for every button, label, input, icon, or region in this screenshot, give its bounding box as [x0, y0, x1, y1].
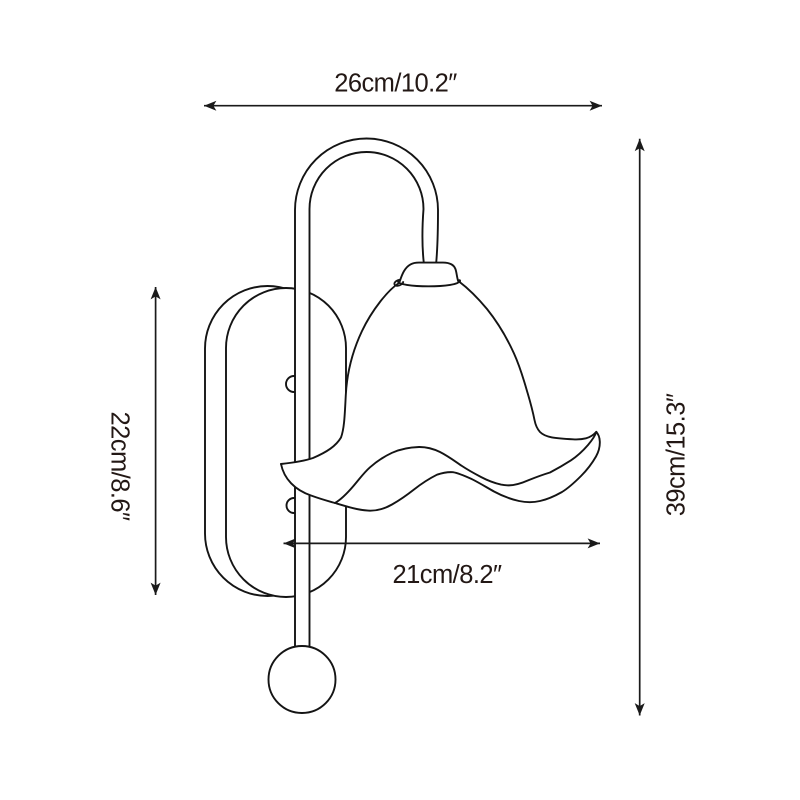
- svg-text:22cm/8.6″: 22cm/8.6″: [105, 412, 133, 521]
- svg-text:21cm/8.2″: 21cm/8.2″: [393, 561, 502, 589]
- svg-text:26cm/10.2″: 26cm/10.2″: [334, 70, 457, 98]
- svg-text:39cm/15.3″: 39cm/15.3″: [662, 393, 690, 516]
